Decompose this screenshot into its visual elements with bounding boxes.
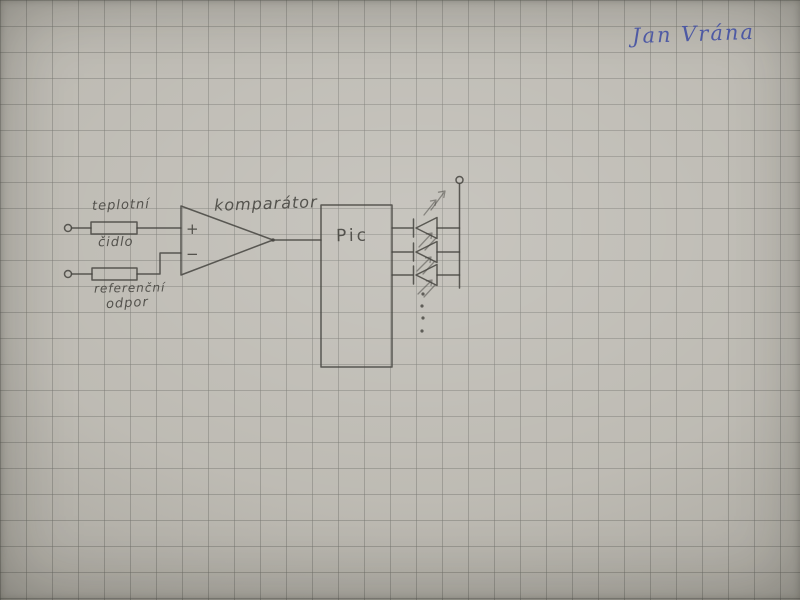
ellipsis-dot xyxy=(421,316,424,319)
resistor-reference xyxy=(92,268,137,280)
temperature-sensor-label-line2: čidlo xyxy=(98,235,134,251)
comparator-triangle xyxy=(181,206,273,275)
input-terminal-bottom xyxy=(65,271,72,278)
comparator-minus-input: − xyxy=(186,245,199,263)
emission-arrow-icon xyxy=(418,280,432,294)
led-channel-1 xyxy=(392,218,460,239)
led2-triangle xyxy=(416,242,437,263)
emission-arrow-icon xyxy=(424,200,436,215)
input-terminal-top xyxy=(65,225,72,232)
temperature-sensor-label-line1: teplotní xyxy=(92,197,150,214)
reference-resistor-label-line2: odpor xyxy=(106,295,149,312)
supply-terminal xyxy=(456,177,463,184)
ellipsis-dot xyxy=(420,329,423,332)
led3-triangle xyxy=(416,265,437,286)
resistor-temperature-sensor xyxy=(91,222,137,234)
led1-triangle xyxy=(416,218,437,239)
more-channels-dots xyxy=(420,292,424,332)
ellipsis-dot xyxy=(421,292,424,295)
graph-paper: + − xyxy=(0,0,800,600)
emission-arrow-icon xyxy=(425,238,436,250)
comparator-plus-input: + xyxy=(186,220,199,238)
wire-reference xyxy=(72,253,182,274)
led-emission-arrows xyxy=(417,191,445,297)
comparator-label: komparátor xyxy=(214,192,318,215)
author-signature: Jan Vrána xyxy=(632,20,756,48)
pic-label: Pic xyxy=(336,226,369,247)
led-channel-3 xyxy=(392,265,460,286)
reference-resistor-label-line1: referenční xyxy=(94,280,166,295)
led-channel-2 xyxy=(392,242,460,263)
ellipsis-dot xyxy=(420,304,423,307)
